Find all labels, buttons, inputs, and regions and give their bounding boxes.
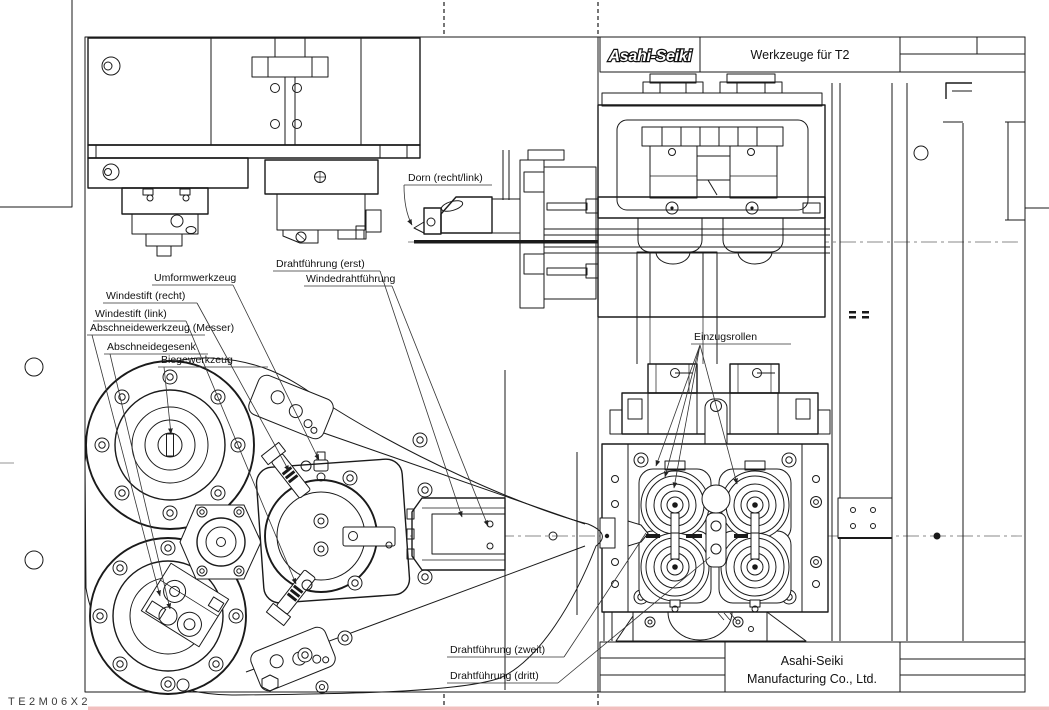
svg-text:Drahtführung (zweit): Drahtführung (zweit) [450, 644, 545, 656]
view-feed-rollers-front [600, 364, 941, 641]
punch-hole-bottom [25, 551, 43, 569]
view-camplate-front [85, 37, 602, 695]
drawing-code: TE2M06X2 [8, 696, 91, 708]
svg-text:Abschneidegesenk: Abschneidegesenk [107, 341, 196, 353]
svg-text:Dorn (recht/link): Dorn (recht/link) [408, 172, 483, 184]
feed-roller [721, 471, 789, 539]
centerline-dot [934, 533, 941, 540]
title-block-bottom: Asahi-Seiki Manufacturing Co., Ltd. [600, 642, 1025, 692]
svg-text:Abschneidewerkzeug (Messer): Abschneidewerkzeug (Messer) [90, 322, 234, 334]
svg-text:Windestift (recht): Windestift (recht) [106, 290, 185, 302]
company-name-line1: Asahi-Seiki [781, 654, 844, 668]
drawing-title: Werkzeuge für T2 [751, 48, 850, 62]
bottom-strip [88, 707, 1049, 710]
quill-body [412, 498, 505, 570]
feed-roller [641, 533, 709, 601]
feed-roller [721, 533, 789, 601]
svg-text:Windestift (link): Windestift (link) [95, 308, 167, 320]
svg-text:Drahtführung (dritt): Drahtführung (dritt) [450, 670, 539, 682]
punch-hole-top [25, 358, 43, 376]
mount-tab-upper [246, 373, 336, 442]
svg-text:Drahtführung (erst): Drahtführung (erst) [276, 258, 365, 270]
company-logo: Asahi-Seiki [608, 48, 693, 65]
annotation-dorn: Dorn (recht/link) [404, 172, 492, 225]
wire-guide-ball [702, 485, 730, 513]
company-name-line2: Manufacturing Co., Ltd. [747, 672, 877, 686]
svg-text:Windedrahtführung: Windedrahtführung [306, 273, 395, 285]
cad-drawing-canvas: TE2M06X2 Asahi-Seiki Werkzeuge für T2 As… [0, 0, 1049, 710]
svg-text:Umformwerkzeug: Umformwerkzeug [154, 272, 236, 284]
title-block-top: Asahi-Seiki Werkzeuge für T2 [600, 37, 1025, 72]
technical-drawing-sheet: TE2M06X2 Asahi-Seiki Werkzeuge für T2 As… [0, 0, 1049, 710]
svg-text:Biegewerkzeug: Biegewerkzeug [161, 354, 233, 366]
svg-text:Einzugsrollen: Einzugsrollen [694, 331, 757, 343]
